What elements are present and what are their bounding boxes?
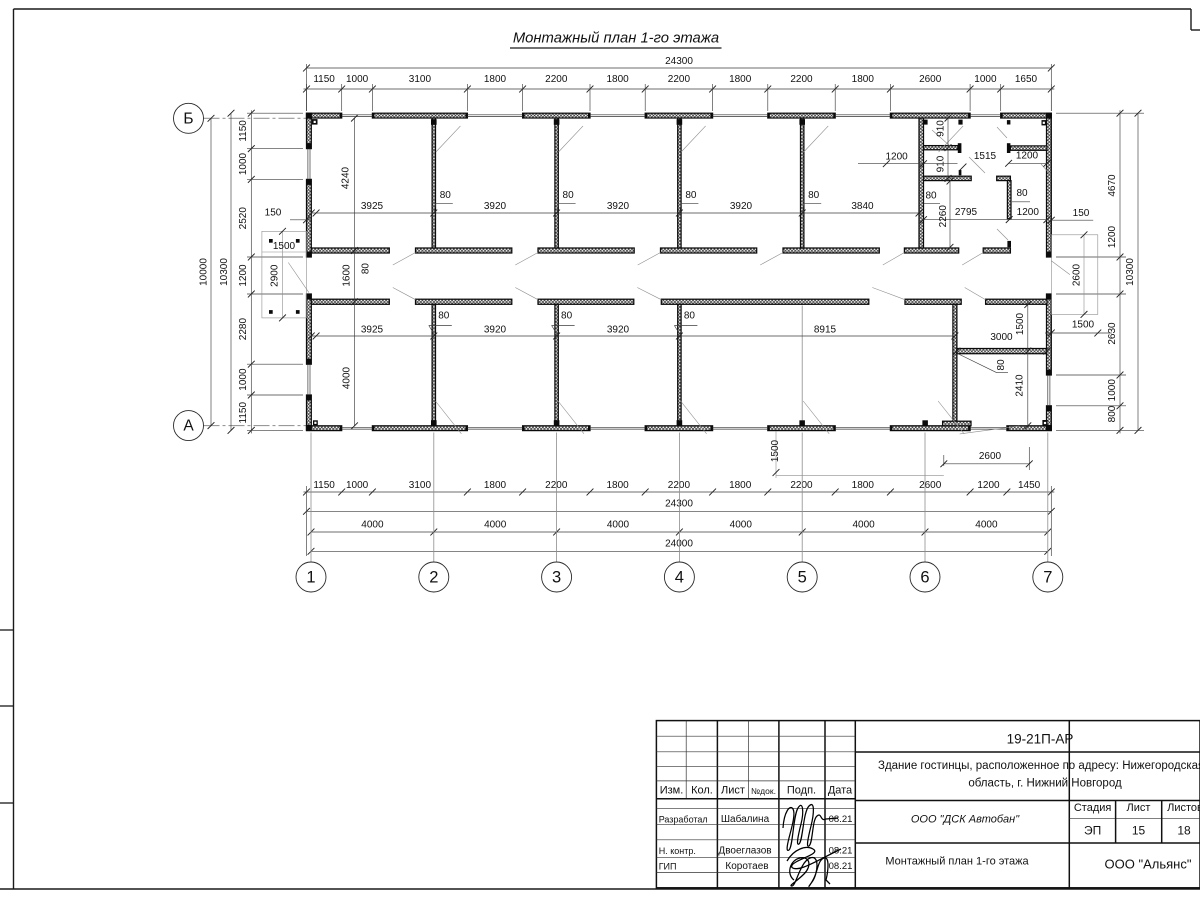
- svg-text:5: 5: [798, 569, 807, 587]
- svg-text:2410: 2410: [1015, 374, 1026, 397]
- svg-text:80: 80: [685, 190, 697, 201]
- svg-text:80: 80: [563, 190, 575, 201]
- svg-text:80: 80: [808, 190, 820, 201]
- svg-text:80: 80: [1016, 188, 1028, 199]
- svg-text:18: 18: [1177, 824, 1191, 838]
- svg-text:2600: 2600: [979, 451, 1002, 462]
- svg-text:08.21: 08.21: [829, 861, 853, 872]
- svg-text:8915: 8915: [814, 325, 837, 336]
- svg-text:1150: 1150: [313, 480, 335, 491]
- svg-text:1800: 1800: [606, 74, 629, 85]
- svg-text:1650: 1650: [1015, 74, 1038, 85]
- svg-text:1000: 1000: [238, 152, 249, 175]
- svg-text:3000: 3000: [990, 332, 1013, 343]
- svg-text:3925: 3925: [361, 201, 384, 212]
- svg-text:1500: 1500: [273, 241, 296, 252]
- svg-text:10000: 10000: [199, 258, 210, 286]
- svg-text:80: 80: [996, 359, 1007, 371]
- svg-text:3920: 3920: [730, 201, 753, 212]
- svg-text:Кол.: Кол.: [691, 785, 713, 797]
- svg-text:№док.: №док.: [751, 786, 776, 796]
- svg-text:1000: 1000: [238, 368, 249, 391]
- svg-text:80: 80: [561, 310, 573, 321]
- svg-text:2795: 2795: [955, 207, 978, 218]
- svg-text:80: 80: [438, 310, 450, 321]
- svg-text:4000: 4000: [342, 366, 353, 389]
- svg-text:1800: 1800: [606, 480, 629, 491]
- svg-text:4000: 4000: [607, 520, 630, 531]
- svg-text:1600: 1600: [342, 264, 353, 287]
- svg-text:4000: 4000: [730, 520, 753, 531]
- svg-text:4000: 4000: [975, 520, 998, 531]
- svg-text:2200: 2200: [668, 74, 691, 85]
- svg-text:1200: 1200: [977, 480, 1000, 491]
- svg-text:15: 15: [1132, 824, 1146, 838]
- svg-text:80: 80: [925, 191, 937, 202]
- svg-text:ООО "ДСК Автобан": ООО "ДСК Автобан": [911, 814, 1020, 826]
- svg-text:2900: 2900: [270, 264, 281, 287]
- svg-text:910: 910: [936, 120, 947, 137]
- svg-text:Лист: Лист: [721, 785, 745, 797]
- svg-text:2600: 2600: [919, 74, 942, 85]
- svg-text:3920: 3920: [484, 201, 507, 212]
- svg-text:3920: 3920: [484, 325, 507, 336]
- svg-text:1: 1: [306, 569, 315, 587]
- svg-text:800: 800: [1107, 405, 1118, 422]
- svg-text:Монтажный план 1-го этажа: Монтажный план 1-го этажа: [513, 31, 719, 47]
- svg-text:2200: 2200: [790, 74, 813, 85]
- svg-text:4240: 4240: [341, 166, 352, 189]
- svg-text:Разработал: Разработал: [659, 815, 708, 825]
- svg-text:4000: 4000: [852, 520, 875, 531]
- svg-text:А: А: [183, 418, 194, 435]
- svg-text:1800: 1800: [729, 74, 752, 85]
- svg-text:80: 80: [440, 190, 452, 201]
- svg-text:2200: 2200: [790, 480, 813, 491]
- svg-text:4670: 4670: [1107, 174, 1118, 197]
- svg-text:1800: 1800: [852, 480, 875, 491]
- svg-text:2600: 2600: [1072, 263, 1083, 286]
- svg-text:1000: 1000: [346, 480, 369, 491]
- svg-text:08.21: 08.21: [829, 814, 853, 825]
- svg-text:10300: 10300: [219, 258, 230, 286]
- svg-text:3920: 3920: [607, 325, 630, 336]
- svg-text:ООО "Альянс": ООО "Альянс": [1105, 857, 1192, 872]
- svg-text:3920: 3920: [607, 201, 630, 212]
- svg-text:2520: 2520: [238, 207, 249, 230]
- svg-text:3: 3: [552, 569, 561, 587]
- svg-text:3100: 3100: [409, 74, 432, 85]
- svg-text:1200: 1200: [238, 264, 249, 287]
- svg-text:2260: 2260: [938, 205, 949, 228]
- svg-text:Лист: Лист: [1127, 802, 1151, 814]
- svg-text:1800: 1800: [852, 74, 875, 85]
- svg-text:Листов: Листов: [1167, 802, 1200, 814]
- svg-text:1200: 1200: [1107, 225, 1118, 248]
- svg-text:1500: 1500: [1015, 312, 1026, 335]
- svg-text:10300: 10300: [1125, 258, 1136, 286]
- svg-text:1800: 1800: [729, 480, 752, 491]
- svg-text:2600: 2600: [919, 480, 942, 491]
- svg-text:Шабалина: Шабалина: [721, 813, 770, 825]
- svg-text:1150: 1150: [238, 402, 249, 424]
- svg-text:80: 80: [361, 263, 372, 275]
- svg-text:4000: 4000: [484, 520, 507, 531]
- svg-text:Здание гостинцы, расположенное: Здание гостинцы, расположенное по адресу…: [878, 760, 1200, 772]
- svg-text:Подп.: Подп.: [787, 785, 816, 797]
- svg-text:Коротаев: Коротаев: [725, 861, 768, 872]
- svg-text:19-21П-АР: 19-21П-АР: [1007, 732, 1074, 747]
- svg-text:область, г. Нижний Новгород: область, г. Нижний Новгород: [968, 778, 1122, 790]
- svg-text:Стадия: Стадия: [1074, 802, 1112, 814]
- svg-text:1800: 1800: [484, 74, 507, 85]
- svg-text:1150: 1150: [238, 120, 249, 142]
- svg-text:1200: 1200: [885, 152, 908, 163]
- svg-text:Н. контр.: Н. контр.: [659, 846, 696, 856]
- svg-text:Двоеглазов: Двоеглазов: [718, 846, 771, 857]
- svg-text:150: 150: [1073, 208, 1090, 219]
- svg-text:7: 7: [1043, 569, 1052, 587]
- svg-text:1000: 1000: [974, 74, 997, 85]
- svg-text:ГИП: ГИП: [659, 862, 677, 872]
- svg-text:Монтажный план 1-го этажа: Монтажный план 1-го этажа: [885, 856, 1029, 868]
- svg-text:Б: Б: [183, 110, 193, 127]
- svg-text:1515: 1515: [974, 151, 997, 162]
- svg-text:Изм.: Изм.: [660, 785, 684, 797]
- svg-text:1500: 1500: [1072, 320, 1095, 331]
- svg-text:3840: 3840: [851, 201, 874, 212]
- svg-text:3925: 3925: [361, 325, 384, 336]
- svg-text:2280: 2280: [238, 318, 249, 341]
- svg-text:08.21: 08.21: [829, 846, 853, 857]
- svg-text:1450: 1450: [1018, 480, 1041, 491]
- svg-text:80: 80: [684, 310, 696, 321]
- svg-text:24300: 24300: [665, 56, 693, 67]
- svg-text:3100: 3100: [409, 480, 432, 491]
- svg-text:4: 4: [675, 569, 684, 587]
- svg-text:1200: 1200: [1016, 150, 1039, 161]
- svg-text:ЭП: ЭП: [1084, 824, 1101, 838]
- svg-text:1000: 1000: [1107, 379, 1118, 402]
- svg-text:1200: 1200: [1017, 207, 1040, 218]
- svg-text:2200: 2200: [545, 74, 568, 85]
- svg-text:2: 2: [429, 569, 438, 587]
- svg-text:150: 150: [265, 208, 282, 219]
- svg-text:6: 6: [920, 569, 929, 587]
- svg-text:1500: 1500: [770, 439, 781, 462]
- svg-text:1800: 1800: [484, 480, 507, 491]
- svg-text:Дата: Дата: [828, 785, 853, 797]
- svg-text:1150: 1150: [313, 74, 335, 85]
- svg-text:1000: 1000: [346, 74, 369, 85]
- svg-text:4000: 4000: [361, 520, 384, 531]
